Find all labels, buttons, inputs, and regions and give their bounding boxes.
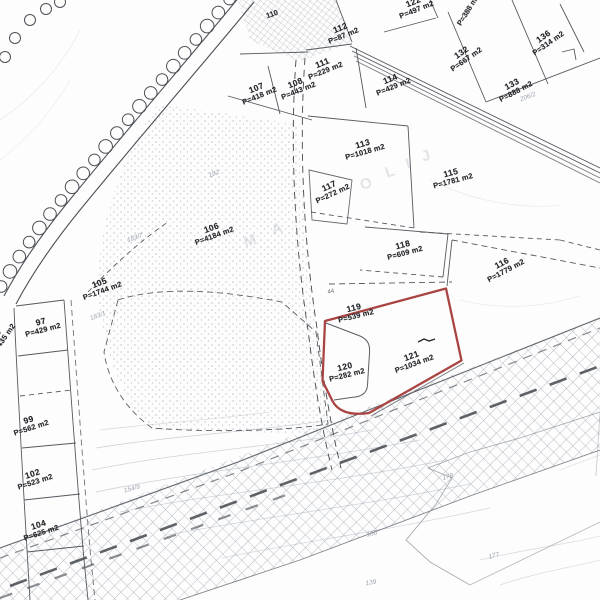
corner-tree-cluster [0, 0, 66, 63]
tree-icon [77, 167, 90, 180]
tree-icon [44, 208, 57, 221]
tree-icon [212, 6, 225, 19]
tree-icon [190, 34, 202, 46]
tree-icon [89, 154, 101, 166]
tree-icon [13, 250, 26, 263]
tree-icon [55, 195, 67, 207]
tree-icon [200, 19, 214, 33]
tree-icon [3, 265, 17, 279]
tree-icon [167, 59, 181, 73]
cadastral-map: 107P=418 m2108P=443 m2111P=229 m2112P=87… [0, 0, 600, 600]
survey-mark-squiggle [418, 339, 435, 342]
tree-icon [65, 180, 79, 194]
tree-icon [178, 47, 191, 60]
tree-icon [99, 140, 113, 154]
tree-icon [33, 221, 47, 235]
tree-icon [122, 114, 134, 126]
tree-icon [133, 100, 147, 114]
survey-tick-label: 44 [327, 288, 335, 295]
tree-icon [23, 236, 35, 248]
tree-icon [156, 74, 168, 86]
tree-icon [111, 127, 124, 140]
tree-icon [0, 281, 7, 293]
tree-icon [144, 87, 157, 100]
parcel-106-stipple [98, 104, 332, 434]
